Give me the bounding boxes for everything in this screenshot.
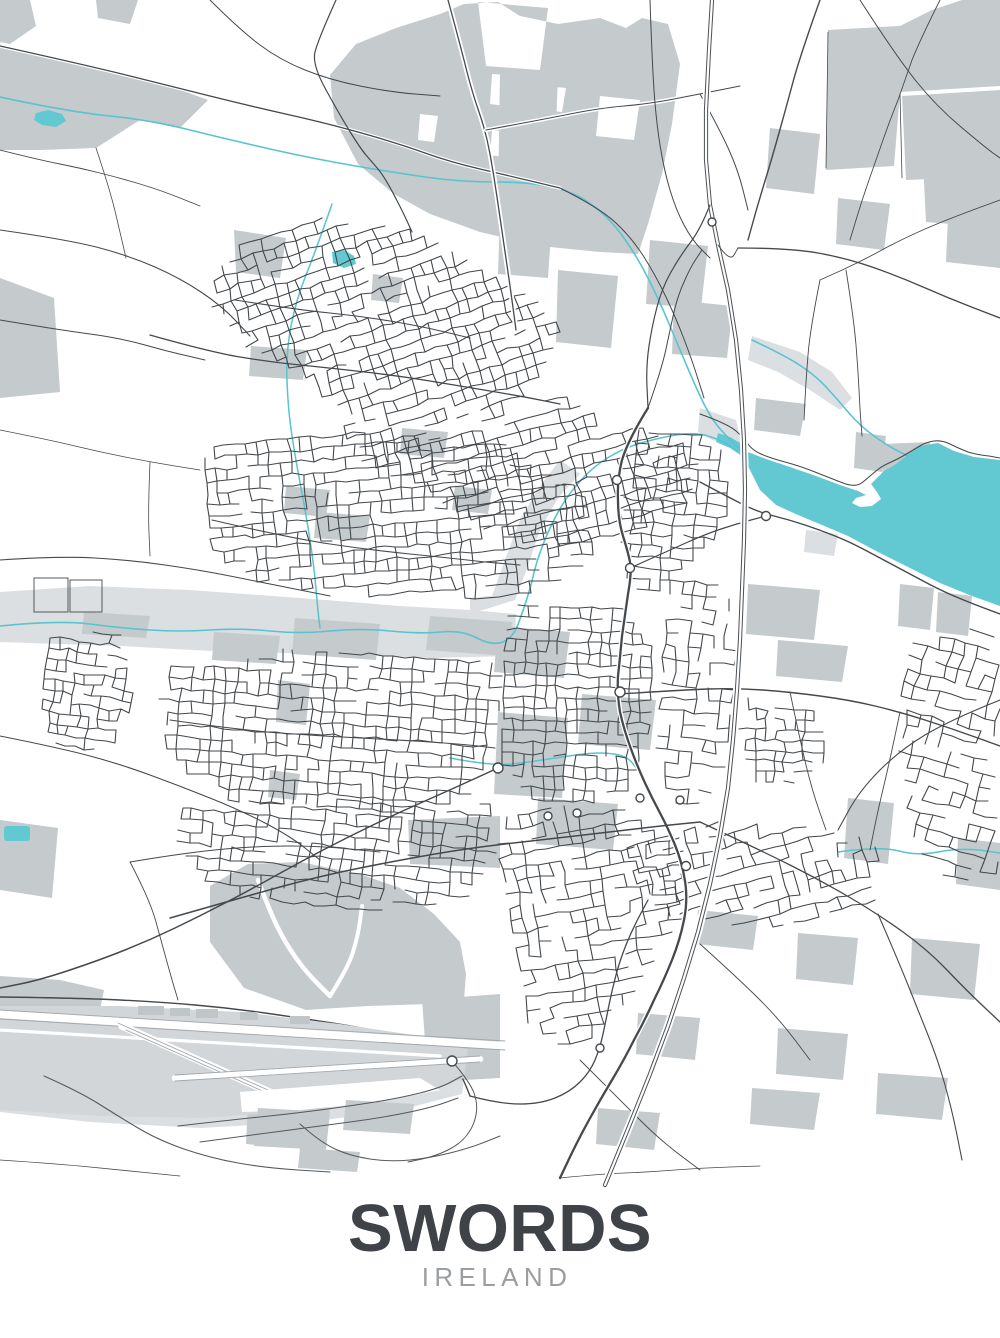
svg-text:SWORDS: SWORDS: [348, 1191, 652, 1266]
svg-text:IRELAND: IRELAND: [422, 1262, 573, 1292]
